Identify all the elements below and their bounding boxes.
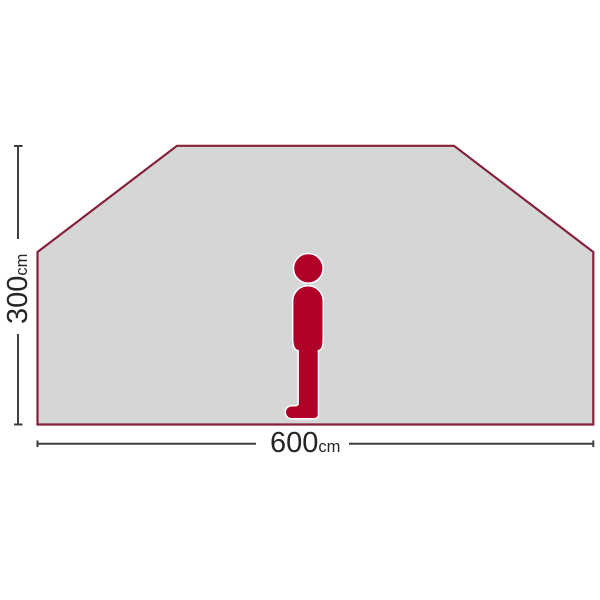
- svg-text:600cm: 600cm: [270, 427, 340, 459]
- svg-text:300cm: 300cm: [2, 254, 34, 324]
